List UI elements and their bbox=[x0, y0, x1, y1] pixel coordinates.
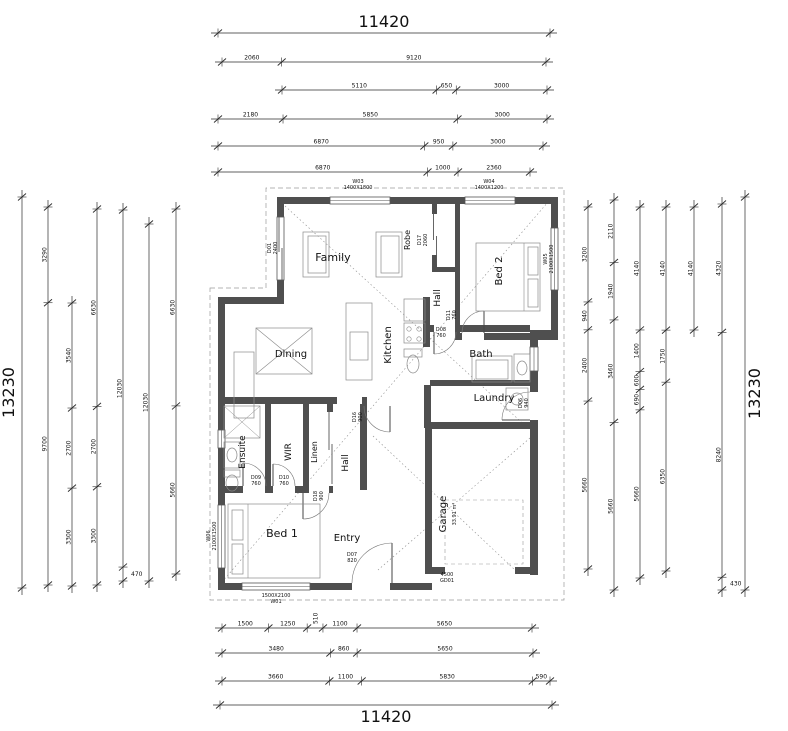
annotation-1500x2100: 1500X2100W01 bbox=[262, 593, 291, 605]
furniture bbox=[232, 510, 243, 540]
furniture bbox=[381, 236, 399, 273]
furniture bbox=[228, 504, 320, 578]
annotation-w03: W031400X1800 bbox=[344, 179, 373, 191]
annotation-d09: D09760 bbox=[251, 475, 261, 487]
dim-label: 4140 bbox=[660, 261, 667, 276]
furniture bbox=[514, 354, 530, 382]
dim-label: 2060 bbox=[244, 55, 259, 62]
annotation-4500: 4500GD01 bbox=[440, 572, 454, 584]
room-label-garage: Garage bbox=[438, 496, 449, 533]
dim-label: 5660 bbox=[634, 486, 641, 501]
dim-label: 590 bbox=[536, 674, 548, 681]
cooktop-burner bbox=[417, 337, 421, 341]
fixture-bowl bbox=[407, 355, 419, 373]
room-label-laundry: Laundry bbox=[474, 393, 515, 404]
wall-segment bbox=[295, 486, 303, 493]
wall-segment bbox=[218, 583, 242, 590]
furniture bbox=[528, 279, 538, 307]
dim-label: 5830 bbox=[440, 674, 455, 681]
dim-label: 3000 bbox=[494, 83, 509, 90]
dim-label: 3200 bbox=[582, 247, 589, 262]
dim-label: 3300 bbox=[91, 528, 98, 543]
furniture bbox=[350, 332, 368, 360]
dim-overall-label: 13230 bbox=[745, 368, 764, 419]
room-label-bed-1: Bed 1 bbox=[266, 527, 298, 540]
wall-segment bbox=[218, 297, 284, 304]
dim-label: 1100 bbox=[332, 621, 347, 628]
dim-label: 2110 bbox=[608, 223, 615, 238]
dim-label: 3000 bbox=[490, 139, 505, 146]
furniture bbox=[232, 544, 243, 574]
dim-label: 600 bbox=[634, 375, 641, 387]
room-label-dining: Dining bbox=[275, 349, 307, 360]
dim-label: 3000 bbox=[495, 112, 510, 119]
dim-label: 1000 bbox=[435, 165, 450, 172]
cooktop-burner bbox=[407, 327, 411, 331]
wall-segment bbox=[423, 297, 430, 347]
annotation-d01: D012400 bbox=[267, 242, 279, 255]
dim-label: 3660 bbox=[268, 674, 283, 681]
dim-label: 3540 bbox=[66, 348, 73, 363]
room-label-hall: Hall bbox=[341, 454, 351, 471]
floor-plan-canvas: 1142020609120511065030002180585030006870… bbox=[0, 0, 788, 731]
dim-label: 8240 bbox=[716, 447, 723, 462]
annotation-d11: D11760 bbox=[446, 310, 458, 320]
dim-label: 470 bbox=[131, 571, 143, 578]
dim-label: 2360 bbox=[486, 165, 501, 172]
dim-label: 4140 bbox=[688, 261, 695, 276]
dim-label: 1250 bbox=[280, 621, 295, 628]
fixture-bowl bbox=[517, 361, 527, 375]
annotation-w06: W062100X1500 bbox=[206, 522, 218, 551]
room-label-bath: Bath bbox=[469, 349, 492, 360]
dim-label: 9700 bbox=[42, 436, 49, 451]
furniture bbox=[224, 470, 240, 477]
room-label-hall: Hall bbox=[433, 289, 443, 306]
room-label-ensuite: Ensuite bbox=[238, 435, 248, 469]
dim-label: 6870 bbox=[315, 165, 330, 172]
wall-segment bbox=[432, 204, 437, 214]
room-label-bed-2: Bed 2 bbox=[494, 257, 505, 286]
dim-label: 650 bbox=[441, 83, 453, 90]
annotation-robe: Robe bbox=[403, 230, 412, 250]
dim-label: 1940 bbox=[608, 283, 615, 298]
dim-label: 860 bbox=[338, 646, 350, 653]
dim-label: 5850 bbox=[363, 112, 378, 119]
wall-segment bbox=[333, 397, 337, 404]
wall-segment bbox=[265, 404, 271, 493]
dim-overall-label: 13230 bbox=[0, 367, 18, 418]
furniture bbox=[404, 299, 425, 321]
room-label-wir: WIR bbox=[284, 443, 294, 461]
floor-plan-drawing: 1142020609120511065030002180585030006870… bbox=[0, 0, 788, 731]
dim-label: 12030 bbox=[143, 393, 150, 412]
dim-label: 5660 bbox=[170, 482, 177, 497]
annotation-d17: D172060 bbox=[417, 234, 429, 247]
wall-segment bbox=[218, 486, 243, 493]
room-label-entry: Entry bbox=[334, 533, 361, 544]
wall-segment bbox=[218, 397, 333, 404]
wall-segment bbox=[530, 371, 538, 392]
entry-door-D07-swing-arc bbox=[352, 543, 392, 583]
annotation-d18: D18900 bbox=[313, 491, 325, 501]
wall-segment bbox=[362, 397, 367, 404]
wall-segment bbox=[329, 486, 333, 493]
furniture bbox=[404, 349, 422, 357]
room-label-kitchen: Kitchen bbox=[383, 326, 394, 364]
dim-label: 1750 bbox=[660, 348, 667, 363]
dim-label: 690 bbox=[634, 394, 641, 406]
annotation-d16: D16900 bbox=[352, 412, 364, 422]
dim-label: 5660 bbox=[608, 498, 615, 513]
dim-overall-label: 11420 bbox=[361, 707, 412, 726]
furniture bbox=[476, 243, 540, 311]
dim-label: 6630 bbox=[91, 300, 98, 315]
wall-segment bbox=[327, 404, 333, 412]
wall-segment bbox=[425, 422, 538, 429]
annotation-d10: D10760 bbox=[279, 475, 289, 487]
furniture bbox=[476, 360, 508, 379]
dim-label: 6870 bbox=[314, 139, 329, 146]
dim-label: 2400 bbox=[582, 358, 589, 373]
wall-segment bbox=[277, 197, 558, 204]
annotation-d07: D07820 bbox=[347, 552, 357, 564]
wall-segment bbox=[530, 428, 538, 575]
dim-label: 3300 bbox=[66, 529, 73, 544]
wall-segment bbox=[456, 325, 530, 332]
wall-segment bbox=[484, 333, 558, 340]
dim-label: 3290 bbox=[42, 247, 49, 262]
dim-label: 5110 bbox=[352, 83, 367, 90]
dim-label: 940 bbox=[582, 310, 589, 322]
dim-label: 1400 bbox=[634, 343, 641, 358]
furniture bbox=[528, 247, 538, 275]
room-label-family: Family bbox=[315, 251, 351, 264]
dimensions-layer: 1142020609120511065030002180585030006870… bbox=[0, 12, 764, 726]
dim-label: 6350 bbox=[660, 469, 667, 484]
fixture-bowl bbox=[227, 448, 237, 462]
wall-segment bbox=[390, 583, 432, 590]
wall-segment bbox=[277, 204, 284, 217]
dim-label: 5650 bbox=[437, 621, 452, 628]
cooktop-burner bbox=[407, 337, 411, 341]
dim-label: 3480 bbox=[269, 646, 284, 653]
dim-overall-label: 11420 bbox=[359, 12, 410, 31]
dim-label: 4320 bbox=[716, 260, 723, 275]
annotation-d06: D06940 bbox=[518, 398, 530, 408]
dim-label: 1500 bbox=[238, 621, 253, 628]
furniture bbox=[376, 232, 402, 277]
dim-label: 6630 bbox=[170, 300, 177, 315]
dim-label: 2700 bbox=[91, 439, 98, 454]
dim-label: 2180 bbox=[243, 112, 258, 119]
wall-segment bbox=[310, 583, 352, 590]
annotation-w05: W052100X1500 bbox=[543, 245, 555, 274]
dim-label: 2700 bbox=[66, 440, 73, 455]
dim-label: 1100 bbox=[338, 674, 353, 681]
dim-label: 5650 bbox=[437, 646, 452, 653]
wall-segment bbox=[430, 380, 530, 386]
wall-segment bbox=[430, 325, 434, 332]
dim-label: 3460 bbox=[608, 363, 615, 378]
dim-label: 5660 bbox=[582, 477, 589, 492]
furniture bbox=[234, 352, 254, 418]
room-label-linen: Linen bbox=[310, 441, 319, 463]
dim-label: 950 bbox=[433, 139, 445, 146]
wall-segment bbox=[424, 385, 431, 428]
wall-segment bbox=[425, 428, 432, 574]
wall-segment bbox=[515, 567, 538, 574]
dim-label: 9120 bbox=[406, 55, 421, 62]
dim-label: 430 bbox=[730, 581, 742, 588]
wall-segment bbox=[265, 486, 273, 493]
room-label-33-91-m-: 33.91 m² bbox=[452, 503, 458, 526]
dim-label: 4140 bbox=[634, 261, 641, 276]
hall-door-D16-swing-arc bbox=[364, 406, 390, 432]
annotation-w04: W041400X1200 bbox=[475, 179, 504, 191]
cooktop-burner bbox=[417, 327, 421, 331]
dim-label: 12030 bbox=[117, 379, 124, 398]
annotation-d08: D08760 bbox=[436, 327, 446, 339]
wall-segment bbox=[303, 404, 309, 493]
dim-label: 510 bbox=[313, 612, 320, 624]
